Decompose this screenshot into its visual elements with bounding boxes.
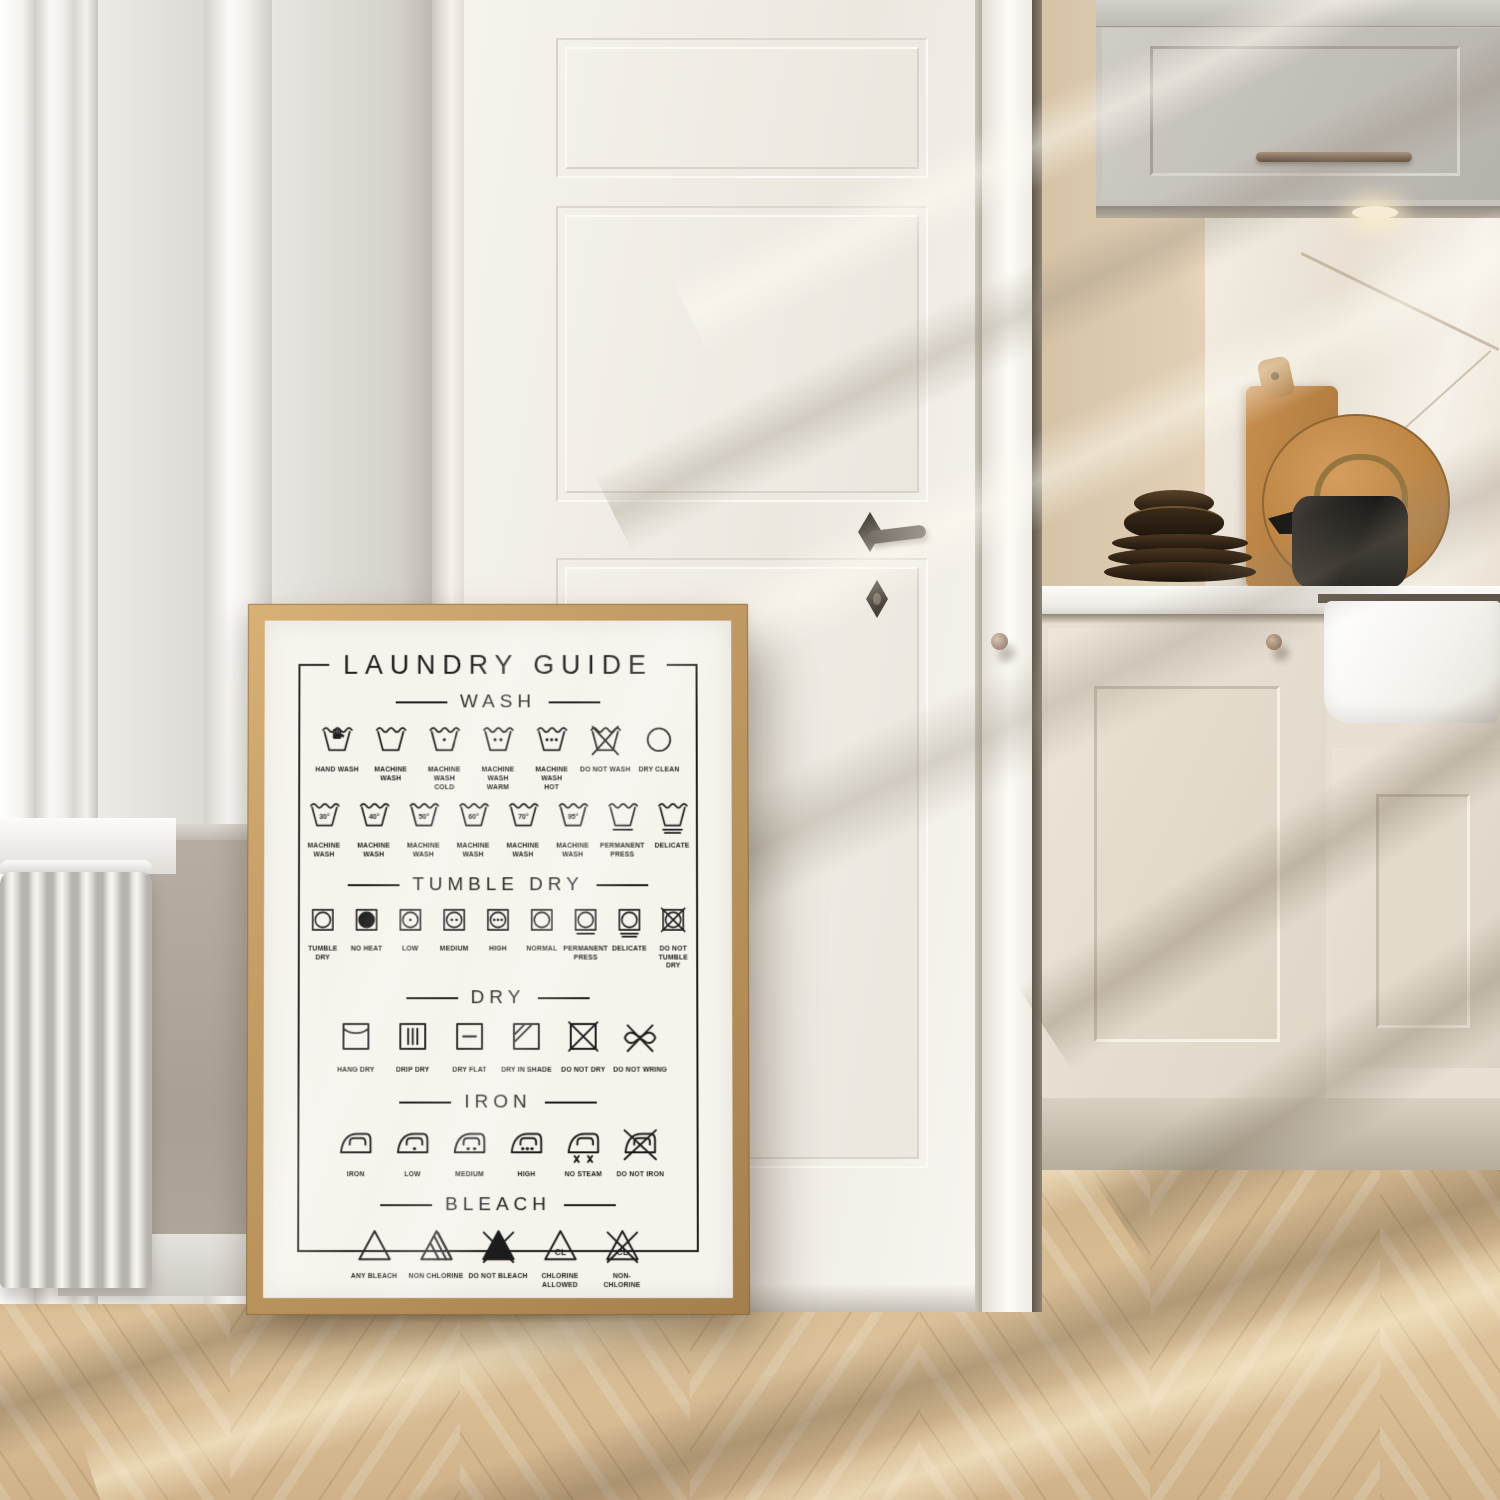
- care-symbol: DELICATE: [647, 798, 697, 860]
- care-symbol-label: DO NOT IRON: [617, 1171, 664, 1180]
- plate: [1104, 562, 1256, 582]
- care-symbol-label: TUMBLE DRY: [301, 945, 345, 963]
- section-heading-label: WASH: [460, 692, 536, 714]
- care-symbol-label: NORMAL: [526, 945, 557, 954]
- upper-cabinet-underside: [1096, 206, 1500, 218]
- svg-text:95°: 95°: [567, 813, 578, 821]
- lower-cabinet-door: [1048, 628, 1326, 1098]
- care-symbol: 60°MACHINE WASH: [448, 798, 498, 860]
- svg-text:60°: 60°: [468, 813, 479, 821]
- upper-cabinet-door: [1102, 28, 1500, 200]
- iron-dot1-icon: [394, 1123, 431, 1169]
- door-edge-seam: [975, 0, 982, 1312]
- sq-circle-icon: [308, 905, 338, 943]
- section-heading-bleach: BLEACH: [380, 1194, 616, 1216]
- care-symbol: PERMANENT PRESS: [597, 798, 647, 860]
- heading-line: [564, 1204, 616, 1206]
- care-symbol-label: NO STEAM: [565, 1171, 602, 1180]
- tub-line2-icon: [656, 798, 689, 839]
- care-symbol-label: PERMANENT PRESS: [600, 842, 645, 860]
- care-symbol-label: MACHINE WASH HOT: [525, 767, 579, 794]
- care-symbol-row: 30°MACHINE WASH40°MACHINE WASH50°MACHINE…: [299, 798, 697, 860]
- care-symbol-label: DO NOT WRING: [613, 1067, 667, 1076]
- sq-filled-icon: [352, 905, 382, 943]
- kitchen-interior-scene: LAUNDRY GUIDE WASHHAND WASHMACHINE WASHM…: [0, 0, 1500, 1500]
- heading-line: [597, 884, 649, 886]
- upper-cabinet-rail: [1096, 0, 1500, 27]
- svg-text:40°: 40°: [368, 813, 379, 821]
- care-symbol: MACHINE WASH COLD: [417, 722, 471, 793]
- tub-95-icon: 95°: [556, 798, 589, 839]
- poster-sections: WASHHAND WASHMACHINE WASHMACHINE WASH CO…: [299, 666, 697, 1250]
- care-symbol-label: NON- CHLORINE: [603, 1273, 640, 1291]
- tri-cl-x-icon: CL: [603, 1225, 640, 1271]
- care-symbol-label: MACHINE WASH: [548, 842, 598, 860]
- section-heading-label: DRY: [471, 988, 526, 1010]
- circle-icon: [642, 722, 676, 764]
- section-heading-dry: DRY: [406, 988, 590, 1010]
- care-symbol-label: NON CHLORINE: [409, 1273, 464, 1282]
- care-symbol: DO NOT WASH: [578, 722, 632, 793]
- care-symbol-label: DRY FLAT: [452, 1067, 486, 1076]
- sq-line1-icon: [571, 905, 601, 943]
- care-symbol-label: HAND WASH: [315, 767, 358, 776]
- care-symbol: MACHINE WASH HOT: [525, 722, 579, 793]
- care-symbol: DRIP DRY: [384, 1018, 441, 1075]
- care-symbol: MACHINE WASH WARM: [471, 722, 525, 793]
- tri-cl-icon: CL: [541, 1225, 578, 1271]
- heading-line: [380, 1204, 432, 1206]
- sink-cabinet-drawer: [1332, 748, 1500, 1068]
- care-symbol: HANG DRY: [327, 1018, 384, 1075]
- care-symbol-label: MACHINE WASH: [299, 842, 349, 860]
- section-heading-tumble-dry: TUMBLE DRY: [348, 874, 649, 896]
- tub-30-icon: 30°: [308, 798, 341, 839]
- care-symbol: DELICATE: [607, 905, 651, 972]
- care-symbol-label: DO NOT TUMBLE DRY: [651, 945, 695, 972]
- section-heading-wash: WASH: [396, 692, 601, 714]
- cabinet-knob: [1266, 634, 1282, 650]
- tub-40-icon: 40°: [357, 798, 390, 839]
- sq-dot3-icon: [483, 905, 513, 943]
- care-symbol-label: HIGH: [518, 1171, 536, 1180]
- care-symbol-label: LOW: [404, 1171, 420, 1180]
- heading-line: [549, 701, 601, 703]
- care-symbol: LOW: [384, 1123, 441, 1180]
- teapot: [1292, 496, 1408, 588]
- doorway-gap: [1032, 0, 1042, 1312]
- care-symbol: DO NOT WRING: [612, 1018, 669, 1075]
- care-symbol: MEDIUM: [432, 905, 476, 972]
- care-symbol-label: DO NOT WASH: [580, 767, 631, 776]
- radiator: [0, 872, 152, 1288]
- iron-icon: [337, 1123, 374, 1169]
- tub-x-icon: [588, 722, 622, 764]
- care-symbol-label: DRIP DRY: [396, 1067, 430, 1076]
- care-symbol: HIGH: [498, 1123, 555, 1180]
- care-symbol-label: DRY CLEAN: [639, 767, 680, 776]
- cabinet-knob: [991, 633, 1008, 650]
- heading-line: [545, 1102, 597, 1104]
- svg-text:50°: 50°: [418, 813, 429, 821]
- care-symbol: 40°MACHINE WASH: [349, 798, 399, 860]
- heading-line: [538, 998, 590, 1000]
- sq-circle-icon: [527, 905, 557, 943]
- care-symbol: HAND WASH: [310, 722, 364, 793]
- tri-x-icon: [480, 1225, 517, 1271]
- iron-nosteam-icon: [565, 1123, 602, 1169]
- shade-icon: [508, 1018, 545, 1063]
- farmhouse-sink: [1324, 601, 1500, 723]
- cabinet-plinth: [1042, 1098, 1500, 1170]
- section-heading-label: BLEACH: [445, 1194, 551, 1216]
- iron-dot2-icon: [451, 1123, 488, 1169]
- care-symbol-label: CHLORINE ALLOWED: [541, 1273, 578, 1291]
- laundry-guide-poster: LAUNDRY GUIDE WASHHAND WASHMACHINE WASHM…: [246, 604, 750, 1315]
- under-cabinet-light: [1352, 206, 1398, 219]
- care-symbol-label: MACHINE WASH: [498, 842, 548, 860]
- care-symbol: MACHINE WASH: [364, 722, 418, 793]
- care-symbol-label: DO NOT DRY: [561, 1067, 605, 1076]
- care-symbol: PERMANENT PRESS: [564, 905, 608, 972]
- tri-icon: [356, 1225, 393, 1271]
- care-symbol: 30°MACHINE WASH: [299, 798, 349, 860]
- care-symbol-label: NO HEAT: [351, 945, 382, 954]
- tub-70-icon: 70°: [506, 798, 539, 839]
- care-symbol: DO NOT BLEACH: [467, 1225, 529, 1292]
- tri-hatch-icon: [418, 1225, 455, 1271]
- care-symbol-label: MEDIUM: [440, 945, 469, 954]
- drip-icon: [394, 1018, 431, 1063]
- sq-dot1-icon: [395, 905, 425, 943]
- sq-line2-icon: [614, 905, 644, 943]
- care-symbol: IRON: [327, 1123, 384, 1180]
- tub-dot1-icon: [427, 722, 461, 764]
- nowring-icon: [622, 1018, 659, 1063]
- care-symbol-row: HANG DRYDRIP DRYDRY FLATDRY IN SHADEDO N…: [327, 1018, 668, 1075]
- section-heading-iron: IRON: [399, 1092, 596, 1114]
- care-symbol: TUMBLE DRY: [301, 905, 345, 972]
- section-heading-label: IRON: [464, 1092, 531, 1114]
- care-symbol-label: HANG DRY: [337, 1067, 375, 1076]
- care-symbol-label: DRY IN SHADE: [501, 1067, 552, 1076]
- care-symbol: DRY CLEAN: [632, 722, 686, 793]
- wood-frame: LAUNDRY GUIDE WASHHAND WASHMACHINE WASHM…: [246, 604, 750, 1315]
- section-heading-label: TUMBLE DRY: [412, 874, 583, 896]
- care-symbol: DRY FLAT: [441, 1018, 498, 1075]
- care-symbol-label: MACHINE WASH: [349, 842, 399, 860]
- upper-cabinet: [1096, 0, 1500, 212]
- care-symbol: MEDIUM: [441, 1123, 498, 1180]
- care-symbol: 70°MACHINE WASH: [498, 798, 548, 860]
- care-symbol-label: HIGH: [489, 945, 507, 954]
- heading-line: [396, 701, 448, 703]
- tall-cabinet-stile: [982, 0, 1032, 1312]
- care-symbol: NON CHLORINE: [405, 1225, 467, 1292]
- care-symbol-label: MACHINE WASH WARM: [471, 767, 525, 794]
- care-symbol-row: IRONLOWMEDIUMHIGHNO STEAMDO NOT IRON: [327, 1123, 668, 1180]
- care-symbol-label: MACHINE WASH: [364, 767, 418, 785]
- sq-dot2-icon: [439, 905, 469, 943]
- care-symbol: CLCHLORINE ALLOWED: [529, 1225, 591, 1292]
- cutting-board-hole: [1271, 372, 1279, 380]
- care-symbol: 95°MACHINE WASH: [548, 798, 598, 860]
- hang-icon: [337, 1018, 374, 1063]
- door-panel: [556, 206, 928, 502]
- heading-line: [348, 884, 400, 886]
- care-symbol-label: ANY BLEACH: [351, 1273, 397, 1282]
- care-symbol: NO HEAT: [345, 905, 389, 972]
- care-symbol: DO NOT IRON: [612, 1123, 669, 1180]
- heading-line: [399, 1102, 451, 1104]
- cabinet-bar-handle: [1256, 152, 1412, 162]
- care-symbol: DRY IN SHADE: [498, 1018, 555, 1075]
- svg-text:CL: CL: [554, 1246, 565, 1256]
- iron-dot3-icon: [508, 1123, 545, 1169]
- tub-50-icon: 50°: [407, 798, 440, 839]
- svg-text:30°: 30°: [319, 813, 330, 821]
- care-symbol-row: TUMBLE DRYNO HEATLOWMEDIUMHIGHNORMALPERM…: [301, 905, 695, 972]
- tub-60-icon: 60°: [457, 798, 490, 839]
- care-symbol-label: MEDIUM: [455, 1171, 484, 1180]
- door-panel: [556, 38, 928, 178]
- care-symbol-label: MACHINE WASH: [399, 842, 449, 860]
- care-symbol-row: ANY BLEACHNON CHLORINEDO NOT BLEACHCLCHL…: [343, 1225, 653, 1292]
- care-symbol-label: DELICATE: [655, 842, 690, 851]
- care-symbol: DO NOT DRY: [555, 1018, 612, 1075]
- flat-icon: [451, 1018, 488, 1063]
- tub-hand-icon: [320, 722, 354, 764]
- svg-text:70°: 70°: [518, 813, 529, 821]
- care-symbol-label: DELICATE: [612, 945, 647, 954]
- care-symbol-label: PERMANENT PRESS: [563, 945, 608, 963]
- care-symbol-label: DO NOT BLEACH: [468, 1273, 527, 1282]
- care-symbol: DO NOT TUMBLE DRY: [651, 905, 695, 972]
- bowl-stack: [1104, 490, 1256, 588]
- nodry-icon: [565, 1018, 602, 1063]
- sq-x-icon: [658, 905, 688, 943]
- poster-paper: LAUNDRY GUIDE WASHHAND WASHMACHINE WASHM…: [263, 621, 733, 1298]
- care-symbol: NO STEAM: [555, 1123, 612, 1180]
- care-symbol: ANY BLEACH: [343, 1225, 405, 1292]
- tub-icon: [374, 722, 408, 764]
- care-symbol-label: MACHINE WASH COLD: [417, 767, 471, 794]
- care-symbol-row: HAND WASHMACHINE WASHMACHINE WASH COLDMA…: [310, 722, 686, 793]
- care-symbol: HIGH: [476, 905, 520, 972]
- heading-line: [406, 998, 458, 1000]
- lower-cabinet-panel: [1094, 686, 1280, 1042]
- tub-line1-icon: [606, 798, 639, 839]
- tub-dot3-icon: [535, 722, 569, 764]
- poster-border: LAUNDRY GUIDE WASHHAND WASHMACHINE WASHM…: [297, 664, 699, 1252]
- care-symbol: NORMAL: [520, 905, 564, 972]
- care-symbol-label: MACHINE WASH: [448, 842, 498, 860]
- care-symbol-label: IRON: [347, 1171, 365, 1180]
- iron-x-icon: [622, 1123, 659, 1169]
- care-symbol: 50°MACHINE WASH: [399, 798, 449, 860]
- tub-dot2-icon: [481, 722, 515, 764]
- care-symbol: CLNON- CHLORINE: [591, 1225, 653, 1292]
- care-symbol: LOW: [388, 905, 432, 972]
- care-symbol-label: LOW: [402, 945, 418, 954]
